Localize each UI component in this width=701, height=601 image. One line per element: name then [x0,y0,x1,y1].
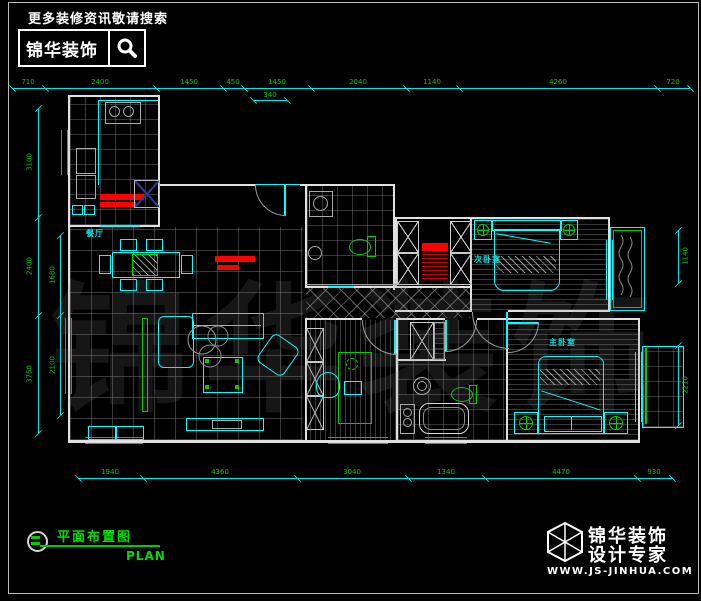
wall [393,217,610,219]
dining-table-center [132,254,158,276]
monitor [344,381,362,395]
plan-subtitle: PLAN [126,549,166,563]
lamp-icon [609,416,623,430]
dim-label: 2210 [683,376,690,394]
bathtub-inner [423,407,465,430]
dim-label: 2400 [91,79,109,86]
closet-red-ladder [422,253,448,279]
room-label-master: 主卧室 [549,339,576,347]
dim-label: 710 [21,79,34,86]
master-bed-pillows [540,369,600,385]
dim-label: 2040 [349,79,367,86]
dim-line-top-sub [253,100,287,101]
dim-line-left-inner [60,235,61,415]
shelf-item [403,418,412,427]
search-hint-text: 更多装修资讯敬请搜索 [28,8,168,27]
shelf-item [403,408,412,417]
toilet-tank [469,385,477,404]
wall [305,184,307,287]
sink-basin [84,205,95,215]
dining-chair [120,239,137,251]
dim-label: 2400 [27,257,34,275]
kitchen-window [61,130,68,175]
brand-logo-box: 锦华装饰 [18,29,146,67]
dim-label: 1680 [50,266,57,284]
dim-line-left-outer [38,108,39,433]
title-underline [40,545,160,547]
wall [305,286,328,288]
dim-label: 2100 [50,356,57,374]
window-bench [116,426,144,440]
wall [300,184,395,186]
dim-label: 4360 [211,469,229,476]
closet-xbox [450,253,472,285]
study-door-leaf [394,320,396,354]
sink-basin [72,205,83,215]
dim-label: 1340 [437,469,455,476]
bath1-door-threshold [328,286,354,288]
closet-xbox [397,221,419,253]
brand-name: 锦华装饰 [20,36,108,61]
wall [68,225,102,227]
burner-icon [109,106,120,117]
sideboard-red-bar [215,256,255,262]
study-window [328,437,388,444]
headboard-divider [571,416,572,430]
dim-label: 720 [666,79,679,86]
desk-chair [316,372,340,398]
wall [68,95,160,97]
dim-line-right2 [678,345,679,425]
washer-drum [313,196,328,211]
dim-line-top [12,88,690,89]
living-window [65,318,72,394]
footer-brand-line2: 设计专家 [588,541,668,567]
entry-door-leaf [284,185,286,215]
wall [354,286,395,288]
dim-label: 450 [226,79,239,86]
dim-label: 1140 [423,79,441,86]
counter-line [98,100,158,101]
wall [395,310,472,312]
wall [508,310,608,312]
counter-line [98,100,99,185]
dim-line-right1 [678,230,679,283]
closet-xbox [450,221,472,253]
wall [395,286,472,288]
dining-chair [99,255,111,274]
burner-icon [123,106,134,117]
hall-edge [306,284,470,285]
plan-marker-icon [27,531,48,552]
stove-red-bar [100,202,136,207]
dim-label: 1940 [101,469,119,476]
bath2-cabinet [434,322,445,360]
wall [68,95,70,226]
plant-icon [180,318,240,376]
master-balcony-window [635,352,642,422]
wall [158,184,255,186]
bath2-door-leaf [445,320,447,351]
dim-label: 340 [263,92,276,99]
dim-label: 1140 [683,247,690,265]
master-headboard [544,416,602,432]
bookshelf-xbox [306,328,324,362]
dim-label: 1450 [180,79,198,86]
shaft-box [134,180,160,208]
dim-line-bottom [78,478,672,479]
dim-label: 3100 [27,153,34,171]
magnifier-icon [110,37,144,59]
cube-logo-icon [545,521,585,563]
table-dot [205,385,209,389]
bath2-wardrobe [410,322,434,360]
room-label-bedroom2: 次卧室 [474,256,501,264]
master-door-leaf [508,322,538,324]
bookshelf-xbox [306,396,324,430]
toilet-tank [367,236,376,257]
kitchen-cabinet [76,175,96,199]
dining-chair [146,279,163,291]
dining-chair [120,279,137,291]
table-dot [235,385,239,389]
sink-drain [417,381,427,391]
hallway-floor [306,287,470,318]
dim-label: 930 [647,469,660,476]
dining-chair [146,239,163,251]
room-label-dining: 餐厅 [86,230,104,238]
closet-xbox [397,253,419,285]
dining-chair [181,255,193,274]
wall [305,318,362,320]
dim-label: 4470 [552,469,570,476]
bath2-window [425,437,467,444]
sideboard-red-bar [217,265,239,270]
wall [140,225,160,227]
lamp-icon [477,224,489,236]
living-tall-window [142,318,148,412]
dim-label: 1450 [268,79,286,86]
kitchen-cabinet [76,148,96,174]
bed2-blanket [496,256,556,273]
dim-label: 4260 [549,79,567,86]
desk-plant-icon [346,358,358,370]
cad-sheet: 更多装修资讯敬请搜索 锦华装饰 [0,0,701,601]
sink-icon [308,246,322,260]
window-bench [88,426,116,440]
closet-red-bar [422,243,448,251]
kitchen-door-threshold [100,225,140,227]
wall [396,318,445,320]
lamp-icon [519,416,533,430]
curtain-icon [616,233,637,303]
plan-title: 平面布置图 [57,526,132,545]
lamp-icon [563,224,575,236]
balcony-bottom-glass [645,348,647,424]
tv [212,420,242,429]
dim-label: 3040 [343,469,361,476]
dim-label: 3750 [27,365,34,383]
footer-website: WWW.JS-JINHUA.COM [547,566,693,577]
